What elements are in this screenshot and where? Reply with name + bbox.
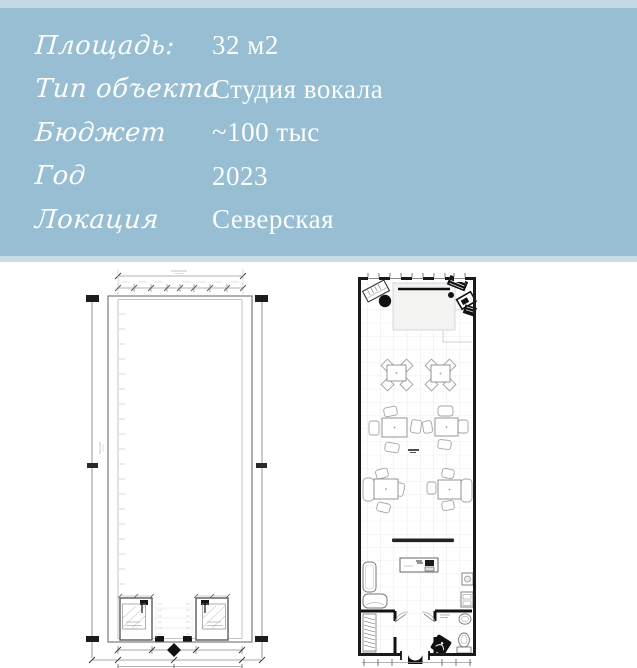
info-row-area: Площадь: 32 м2 <box>35 24 615 68</box>
info-row-year: Год 2023 <box>35 155 615 199</box>
area-value: 32 м2 <box>212 30 279 61</box>
header-bottom-strip <box>0 256 637 262</box>
year-label: Год <box>34 161 213 191</box>
budget-value: ~100 тыс <box>212 117 320 148</box>
project-card: Площадь: 32 м2 Тип объекта Студия вокала… <box>0 0 637 668</box>
info-row-budget: Бюджет ~100 тыс <box>35 111 615 155</box>
right-floor-plan-drawing <box>354 270 480 668</box>
left-floor-plan-drawing <box>70 266 280 668</box>
info-rows: Площадь: 32 м2 Тип объекта Студия вокала… <box>35 24 615 242</box>
area-label: Площадь: <box>34 31 213 61</box>
budget-label: Бюджет <box>34 118 213 148</box>
project-info-header: Площадь: 32 м2 Тип объекта Студия вокала… <box>0 0 637 262</box>
info-row-location: Локация Северская <box>35 198 615 242</box>
object-type-value: Студия вокала <box>212 74 383 105</box>
info-row-object-type: Тип объекта Студия вокала <box>35 68 615 112</box>
location-label: Локация <box>34 205 213 235</box>
location-value: Северская <box>212 204 334 235</box>
object-type-label: Тип объекта <box>34 74 213 104</box>
header-top-strip <box>0 0 637 8</box>
year-value: 2023 <box>212 161 268 192</box>
